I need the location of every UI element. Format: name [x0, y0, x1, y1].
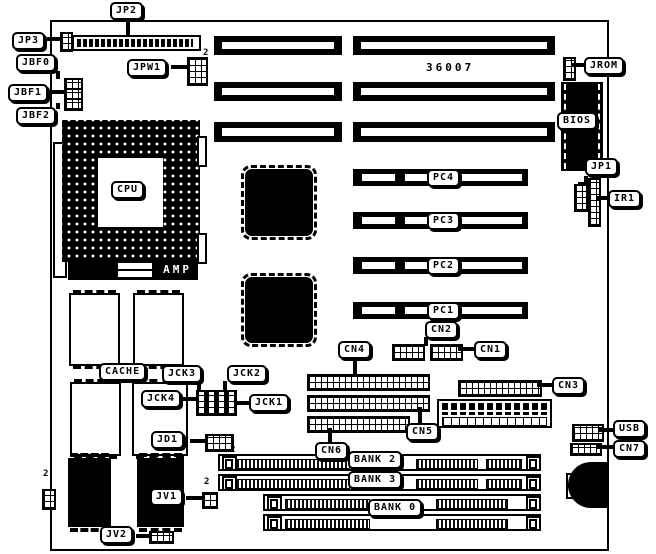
simm-pins [436, 519, 508, 529]
pci-slot-inner [405, 174, 522, 181]
amp-window [118, 263, 152, 269]
simm-pins [285, 519, 370, 529]
motherboard-diagram: 36007 PC4 PC3 PC2 PC1 CPU AMP CACHE [0, 0, 656, 554]
callout-pc1: PC1 [427, 302, 460, 320]
leader-jpw1 [171, 65, 188, 69]
left-edge-jumper [42, 489, 56, 510]
jpw1-header [187, 57, 208, 86]
simm-clip [267, 516, 282, 531]
leader-cn7 [597, 445, 614, 449]
simm-clip [222, 456, 237, 471]
jbf2-jumper [64, 98, 83, 111]
ic-chip-1 [68, 458, 111, 527]
callout-cn5: CN5 [406, 423, 439, 441]
leader-jck1 [234, 401, 250, 405]
chipset-qfp-2 [245, 277, 313, 343]
leader-jd1 [190, 439, 206, 443]
leader-jck2 [223, 381, 227, 392]
ir1-header [588, 178, 601, 227]
callout-bank0: BANK 0 [368, 499, 422, 517]
callout-jck2: JCK2 [227, 365, 267, 383]
callout-pc4: PC4 [427, 169, 460, 187]
leader-jbf1 [48, 90, 65, 94]
leader-jp3 [47, 37, 61, 41]
jp2-header-strip [72, 35, 201, 51]
callout-jv1: JV1 [150, 488, 183, 506]
isa-slot-inner [222, 88, 334, 95]
cache-chip-2 [133, 293, 184, 366]
power-pins-mid [442, 412, 547, 415]
cn2-header [392, 344, 425, 361]
callout-cn7: CN7 [613, 440, 646, 458]
isa-slot-inner [361, 42, 547, 49]
callout-jck3: JCK3 [162, 365, 202, 383]
cn4-header [307, 374, 430, 391]
simm-pins [486, 479, 522, 489]
leader-jrom [571, 63, 585, 67]
keyboard-din-connector [568, 462, 607, 508]
pci-slot-inner [362, 307, 395, 314]
callout-pc2: PC2 [427, 257, 460, 275]
chipset-qfp-1 [245, 169, 313, 236]
pci-slot-inner [405, 262, 522, 269]
callout-cn3: CN3 [552, 377, 585, 395]
isa-slot-3-left [214, 122, 342, 142]
isa-slot-1-right [353, 36, 555, 55]
jv2-jumper [149, 531, 174, 544]
simm-pins [436, 499, 508, 509]
board-number: 36007 [426, 61, 474, 74]
callout-cn4: CN4 [338, 341, 371, 359]
pci-slot-inner [362, 174, 395, 181]
cache-chip-1 [69, 293, 120, 366]
callout-ir1: IR1 [608, 190, 641, 208]
cache-chip-3 [70, 382, 121, 456]
callout-jp1: JP1 [585, 158, 618, 176]
leader-cn4 [353, 357, 357, 375]
usb-header [572, 424, 604, 442]
amp-window [118, 271, 152, 277]
leader-jv2 [136, 534, 150, 538]
isa-slot-3-right [353, 122, 555, 142]
isa-slot-1-left [214, 36, 342, 55]
callout-jpw1: JPW1 [127, 59, 167, 77]
leader-jck4 [180, 397, 196, 401]
leader-cn3 [537, 383, 553, 387]
callout-cache: CACHE [99, 363, 146, 381]
callout-jd1: JD1 [151, 431, 184, 449]
isa-slot-inner [222, 42, 334, 49]
leader-cn5 [418, 407, 422, 424]
callout-jck4: JCK4 [141, 390, 181, 408]
simm-clip [526, 456, 541, 471]
jrom-jumper [563, 57, 576, 81]
leader-jv1 [186, 496, 203, 500]
callout-jck1: JCK1 [249, 394, 289, 412]
callout-jbf0: JBF0 [16, 54, 56, 72]
callout-cn1: CN1 [474, 341, 507, 359]
amp-retainer: AMP [68, 260, 198, 280]
pci-slot-inner [405, 217, 522, 224]
jp1-jumper [574, 184, 588, 212]
pci-slot-inner [405, 307, 522, 314]
callout-bank2: BANK 2 [348, 451, 402, 469]
jv1-jumper [202, 492, 218, 509]
callout-jp3: JP3 [12, 32, 45, 50]
pin2-marker-jv1: 2 [204, 478, 209, 487]
pin2-marker-jd1: 2 [230, 446, 235, 455]
callout-pc3: PC3 [427, 212, 460, 230]
simm-pins [486, 459, 522, 469]
callout-usb: USB [613, 420, 646, 438]
pin2-marker-jpw1: 2 [203, 49, 208, 58]
simm-pins [236, 459, 350, 469]
callout-cn2: CN2 [425, 321, 458, 339]
callout-jp2: JP2 [110, 2, 143, 20]
simm-pins [416, 459, 478, 469]
jp2-pins [77, 39, 193, 47]
jp3-connector [60, 32, 73, 52]
callout-bios: BIOS [557, 112, 597, 130]
power-pins-bottom [442, 417, 547, 426]
simm-pins [416, 479, 478, 489]
leader-jp2 [126, 19, 130, 36]
leader-jp1-b [578, 182, 588, 186]
simm-clip [526, 516, 541, 531]
cn6-header [307, 416, 410, 433]
callout-jbf1: JBF1 [8, 84, 48, 102]
pci-slot-inner [362, 262, 395, 269]
callout-jbf2: JBF2 [16, 107, 56, 125]
isa-slot-2-right [353, 82, 555, 101]
power-connector [437, 399, 552, 428]
callout-cpu: CPU [111, 181, 144, 199]
isa-slot-inner [361, 128, 547, 136]
socket-tab-bottom [197, 233, 207, 264]
pin2-marker-left-edge: 2 [43, 470, 48, 479]
power-pins-top [442, 403, 547, 410]
simm-pins [236, 479, 350, 489]
simm-clip [222, 476, 237, 491]
simm-clip [526, 476, 541, 491]
leader-jbf0 [56, 71, 60, 79]
isa-slot-inner [222, 128, 334, 136]
callout-jv2: JV2 [100, 526, 133, 544]
isa-slot-inner [361, 88, 547, 95]
leader-cn1 [458, 347, 475, 351]
isa-slot-2-left [214, 82, 342, 101]
amp-text: AMP [163, 263, 192, 276]
simm-clip [526, 496, 541, 511]
cn3-header [458, 380, 542, 397]
leader-usb [599, 428, 614, 432]
leader-jbf2 [56, 103, 60, 109]
socket-tab-top [197, 136, 207, 167]
callout-cn6: CN6 [315, 442, 348, 460]
pci-slot-inner [362, 217, 395, 224]
callout-jrom: JROM [584, 57, 624, 75]
simm-pins [285, 499, 370, 509]
cn5-header [307, 395, 430, 412]
callout-bank3: BANK 3 [348, 471, 402, 489]
simm-clip [267, 496, 282, 511]
